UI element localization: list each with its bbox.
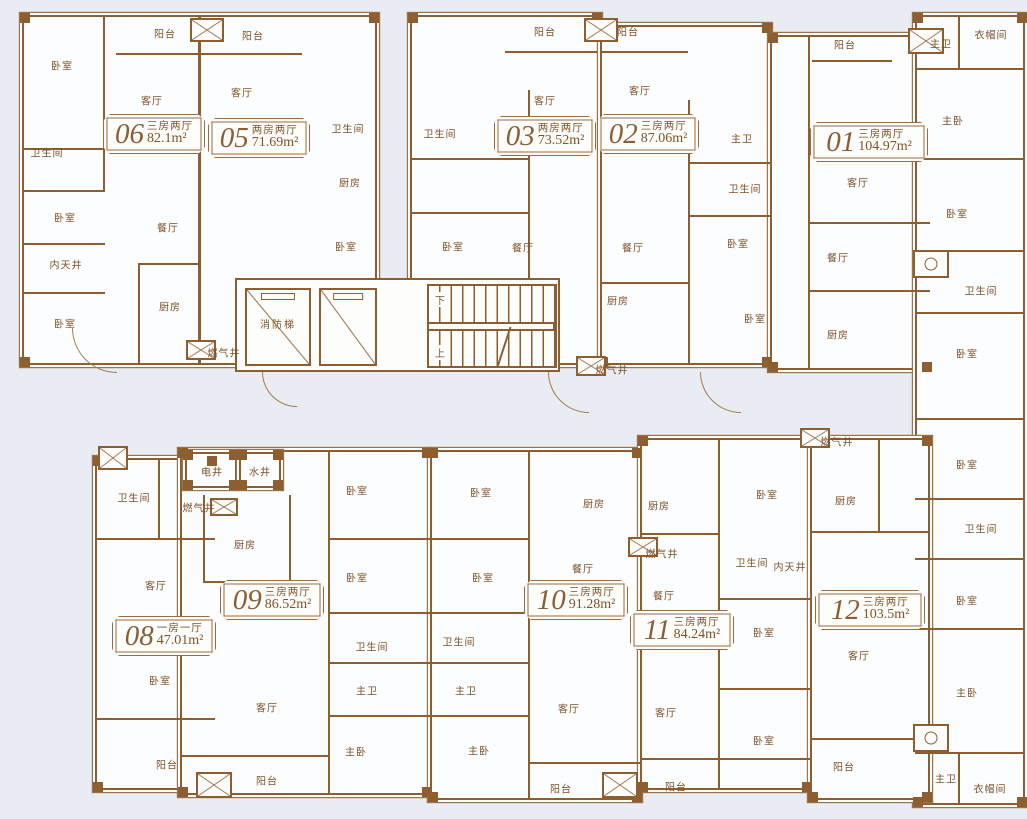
interior-wall — [640, 758, 810, 760]
unit-info: 两房两厅71.69m² — [252, 125, 299, 151]
room-label: 阳台 — [550, 781, 572, 796]
interior-wall — [103, 15, 105, 190]
interior-wall — [688, 162, 770, 164]
structural-column — [762, 23, 772, 33]
structural-column — [638, 436, 648, 446]
structural-column — [922, 362, 932, 372]
unit-badge-08: 08一房一厅47.01m² — [112, 616, 216, 656]
room-label: 燃气井 — [821, 434, 854, 449]
interior-wall — [878, 438, 880, 533]
interior-wall — [718, 688, 810, 690]
unit-info: 三房两厅104.97m² — [858, 129, 912, 155]
interior-wall — [328, 715, 430, 717]
room-label: 阳台 — [833, 759, 855, 774]
room-label: 厨房 — [234, 537, 256, 552]
elevator-stair-core: 消防梯 下 上 — [235, 278, 560, 372]
interior-wall — [915, 498, 1025, 500]
unit-area-label: 84.24m² — [674, 628, 721, 643]
room-label: 内天井 — [50, 257, 83, 272]
room-label: 内天井 — [774, 559, 807, 574]
room-label: 主卧 — [956, 685, 978, 700]
unit-info: 三房两厅87.06m² — [641, 121, 688, 147]
interior-wall — [116, 53, 302, 55]
washer-fixture-icon — [913, 250, 949, 278]
room-label: 卫生间 — [356, 639, 389, 654]
interior-wall — [328, 538, 430, 540]
room-label: 客厅 — [629, 83, 651, 98]
washer-fixture-icon — [913, 724, 949, 752]
structural-column — [183, 450, 193, 460]
structural-column — [20, 13, 30, 23]
unit-badge-03: 03两房两厅73.52m² — [494, 116, 596, 156]
room-label: 燃气井 — [183, 500, 216, 515]
room-label: 阳台 — [617, 24, 639, 39]
elevator-door-icon — [261, 293, 295, 300]
room-label: 卫生间 — [443, 634, 476, 649]
fire-elevator-label: 消防梯 — [247, 316, 309, 331]
interior-wall — [95, 538, 215, 540]
interior-wall — [22, 243, 105, 245]
unit-area-label: 91.28m² — [569, 598, 616, 613]
interior-wall — [158, 458, 160, 538]
interior-wall — [808, 35, 810, 370]
structural-column — [768, 33, 778, 43]
interior-wall — [915, 418, 1025, 420]
interior-wall — [430, 612, 530, 614]
room-label: 卧室 — [744, 311, 766, 326]
room-label: 阳台 — [534, 24, 556, 39]
room-label: 卧室 — [472, 570, 494, 585]
stair-landing — [427, 322, 555, 331]
washer-drum-icon — [925, 258, 938, 271]
room-label: 餐厅 — [653, 588, 675, 603]
room-label: 卧室 — [470, 485, 492, 500]
interior-wall — [138, 263, 200, 265]
unit-number: 03 — [506, 122, 535, 151]
room-label: 燃气井 — [208, 345, 241, 360]
unit-number: 09 — [233, 586, 262, 615]
room-label: 客厅 — [558, 701, 580, 716]
interior-wall — [915, 558, 1025, 560]
room-label: 卫生间 — [736, 555, 769, 570]
room-label: 阳台 — [242, 28, 264, 43]
service-shaft-icon — [98, 446, 128, 470]
interior-wall — [430, 538, 530, 540]
room-label: 卧室 — [335, 239, 357, 254]
structural-column — [178, 787, 188, 797]
unit-info: 三房两厅86.52m² — [265, 587, 312, 613]
room-label: 卧室 — [753, 625, 775, 640]
interior-wall — [198, 15, 201, 365]
interior-wall — [138, 263, 140, 365]
interior-wall — [528, 450, 530, 800]
interior-wall — [718, 598, 810, 600]
unit-number: 01 — [826, 128, 855, 157]
structural-column — [922, 436, 932, 446]
interior-wall — [915, 752, 1025, 754]
room-label: 厨房 — [607, 293, 629, 308]
door-swing-arc — [72, 328, 117, 373]
room-label: 厨房 — [835, 493, 857, 508]
room-label: 客厅 — [847, 175, 869, 190]
interior-wall — [915, 68, 1025, 70]
door-swing-arc — [262, 372, 297, 407]
structural-column — [428, 792, 438, 802]
room-label: 卧室 — [956, 593, 978, 608]
interior-wall — [808, 290, 930, 292]
room-label: 燃气井 — [646, 546, 679, 561]
room-label: 客厅 — [141, 93, 163, 108]
interior-wall — [810, 738, 930, 740]
room-label: 卧室 — [54, 316, 76, 331]
structural-column — [237, 480, 247, 490]
room-label: 卫生间 — [31, 145, 64, 160]
structural-column — [273, 450, 283, 460]
room-label: 卧室 — [956, 346, 978, 361]
floor-plan: 消防梯 下 上 阳台阳台阳台阳台阳台卧室客厅客厅卫生间卧室内天井卧室餐厅厨房燃气… — [0, 0, 1027, 819]
room-label: 阳台 — [156, 757, 178, 772]
unit-number: 06 — [115, 120, 144, 149]
interior-wall — [915, 312, 1025, 314]
unit-badge-10: 10三房两厅91.28m² — [524, 580, 628, 620]
unit-number: 12 — [831, 596, 860, 625]
unit-info: 三房两厅103.5m² — [863, 597, 910, 623]
structural-column — [408, 13, 418, 23]
structural-column — [808, 792, 818, 802]
interior-wall — [430, 715, 530, 717]
service-shaft-icon — [190, 18, 224, 42]
room-label: 卧室 — [442, 239, 464, 254]
room-label: 阳台 — [665, 779, 687, 794]
stairs-down-label: 下 — [433, 292, 447, 307]
structural-column — [20, 357, 30, 367]
door-swing-arc — [700, 372, 741, 413]
structural-column — [428, 448, 438, 458]
unit-number: 02 — [609, 120, 638, 149]
room-label: 阳台 — [256, 773, 278, 788]
interior-wall — [328, 612, 430, 614]
room-label: 卧室 — [51, 58, 73, 73]
interior-wall — [328, 662, 430, 664]
room-label: 厨房 — [648, 498, 670, 513]
interior-wall — [808, 222, 930, 224]
passenger-elevator — [319, 288, 377, 366]
room-label: 主卫 — [731, 131, 753, 146]
interior-wall — [410, 212, 530, 214]
service-shaft-icon — [602, 772, 638, 798]
service-shaft-icon — [584, 18, 618, 42]
room-label: 主卫 — [356, 683, 378, 698]
unit-info: 一房一厅47.01m² — [157, 623, 204, 649]
room-label: 卫生间 — [118, 490, 151, 505]
unit-number: 08 — [125, 622, 154, 651]
room-label: 卧室 — [346, 483, 368, 498]
room-label: 主卧 — [468, 743, 490, 758]
unit-area-label: 103.5m² — [863, 608, 910, 623]
room-label: 客厅 — [534, 93, 556, 108]
washer-drum-icon — [925, 732, 938, 745]
unit-area-label: 82.1m² — [147, 132, 187, 147]
structural-column — [632, 448, 642, 458]
fire-elevator: 消防梯 — [245, 288, 311, 366]
unit-number: 11 — [644, 616, 671, 645]
room-label: 电井 — [201, 464, 223, 479]
unit-area-label: 71.69m² — [252, 136, 299, 151]
interior-wall — [328, 450, 330, 795]
unit-area-label: 47.01m² — [157, 634, 204, 649]
unit-info: 三房两厅82.1m² — [147, 121, 193, 147]
structural-column — [768, 362, 778, 372]
unit-badge-11: 11三房两厅84.24m² — [630, 610, 734, 650]
unit-info: 三房两厅91.28m² — [569, 587, 616, 613]
unit-badge-06: 06三房两厅82.1m² — [103, 114, 205, 154]
room-label: 阳台 — [834, 37, 856, 52]
room-label: 阳台 — [154, 26, 176, 41]
interior-wall — [180, 755, 330, 757]
room-label: 餐厅 — [572, 561, 594, 576]
room-label: 卫生间 — [424, 126, 457, 141]
room-label: 餐厅 — [157, 220, 179, 235]
room-label: 主卧 — [345, 744, 367, 759]
room-label: 主卧 — [942, 113, 964, 128]
unit-badge-02: 02三房两厅87.06m² — [597, 114, 699, 154]
structural-column — [802, 782, 812, 792]
unit-badge-01: 01三房两厅104.97m² — [810, 122, 928, 162]
interior-wall — [22, 292, 105, 294]
interior-wall — [410, 158, 530, 160]
structural-column — [273, 480, 283, 490]
stair-direction-arrow — [497, 327, 512, 368]
room-label: 水井 — [249, 464, 271, 479]
room-label: 客厅 — [848, 648, 870, 663]
room-label: 衣帽间 — [974, 781, 1007, 796]
unit-badge-12: 12三房两厅103.5m² — [815, 590, 925, 630]
unit-info: 三房两厅84.24m² — [674, 617, 721, 643]
room-label: 卧室 — [756, 487, 778, 502]
structural-column — [1017, 13, 1027, 23]
unit-outline-01 — [770, 35, 930, 370]
interior-wall — [600, 282, 690, 284]
interior-wall — [958, 752, 960, 805]
room-label: 客厅 — [256, 700, 278, 715]
interior-wall — [812, 60, 892, 62]
interior-wall — [915, 158, 1025, 160]
interior-wall — [430, 662, 530, 664]
structural-column — [183, 480, 193, 490]
room-label: 客厅 — [145, 578, 167, 593]
room-label: 卧室 — [946, 206, 968, 221]
room-label: 卧室 — [346, 570, 368, 585]
interior-wall — [688, 215, 770, 217]
room-label: 卧室 — [753, 733, 775, 748]
unit-area-label: 73.52m² — [538, 134, 585, 149]
room-label: 餐厅 — [512, 240, 534, 255]
interior-wall — [530, 762, 640, 764]
room-label: 燃气井 — [596, 362, 629, 377]
interior-wall — [915, 628, 1025, 630]
interior-wall — [95, 718, 215, 720]
room-label: 厨房 — [827, 327, 849, 342]
unit-badge-09: 09三房两厅86.52m² — [220, 580, 324, 620]
door-swing-arc — [548, 372, 589, 413]
unit-number: 10 — [537, 586, 566, 615]
room-label: 客厅 — [231, 85, 253, 100]
room-label: 卧室 — [956, 457, 978, 472]
interior-wall — [289, 495, 291, 583]
room-label: 卧室 — [727, 236, 749, 251]
room-label: 卫生间 — [332, 121, 365, 136]
structural-column — [369, 13, 379, 23]
unit-number: 05 — [220, 124, 249, 153]
interior-wall — [810, 531, 930, 533]
structural-column — [93, 782, 103, 792]
unit-badge-05: 05两房两厅71.69m² — [208, 118, 310, 158]
room-label: 客厅 — [655, 705, 677, 720]
structural-column — [237, 450, 247, 460]
unit-outline-10 — [430, 450, 640, 800]
structural-column — [638, 782, 648, 792]
room-label: 餐厅 — [827, 250, 849, 265]
room-label: 厨房 — [159, 299, 181, 314]
structural-column — [922, 792, 932, 802]
interior-wall — [22, 190, 105, 192]
unit-area-label: 104.97m² — [858, 140, 912, 155]
room-label: 餐厅 — [622, 240, 644, 255]
room-label: 衣帽间 — [975, 27, 1008, 42]
structural-column — [913, 13, 923, 23]
room-label: 厨房 — [339, 175, 361, 190]
room-label: 卧室 — [149, 673, 171, 688]
room-label: 主卫 — [455, 683, 477, 698]
structural-column — [1017, 797, 1027, 807]
elevator-door-icon — [333, 293, 363, 300]
interior-wall — [958, 15, 960, 70]
interior-wall — [640, 533, 720, 535]
room-label: 卫生间 — [729, 181, 762, 196]
room-label: 主卫 — [930, 36, 952, 51]
unit-area-label: 86.52m² — [265, 598, 312, 613]
room-label: 主卫 — [935, 771, 957, 786]
staircase: 下 上 — [427, 284, 557, 368]
room-label: 厨房 — [583, 496, 605, 511]
service-shaft-icon — [196, 772, 232, 798]
unit-area-label: 87.06m² — [641, 132, 688, 147]
stairs-up-label: 上 — [433, 345, 447, 360]
room-label: 卫生间 — [965, 521, 998, 536]
interior-wall — [600, 51, 688, 53]
room-label: 卧室 — [54, 210, 76, 225]
unit-info: 两房两厅73.52m² — [538, 123, 585, 149]
room-label: 卫生间 — [965, 283, 998, 298]
interior-wall — [505, 51, 597, 53]
